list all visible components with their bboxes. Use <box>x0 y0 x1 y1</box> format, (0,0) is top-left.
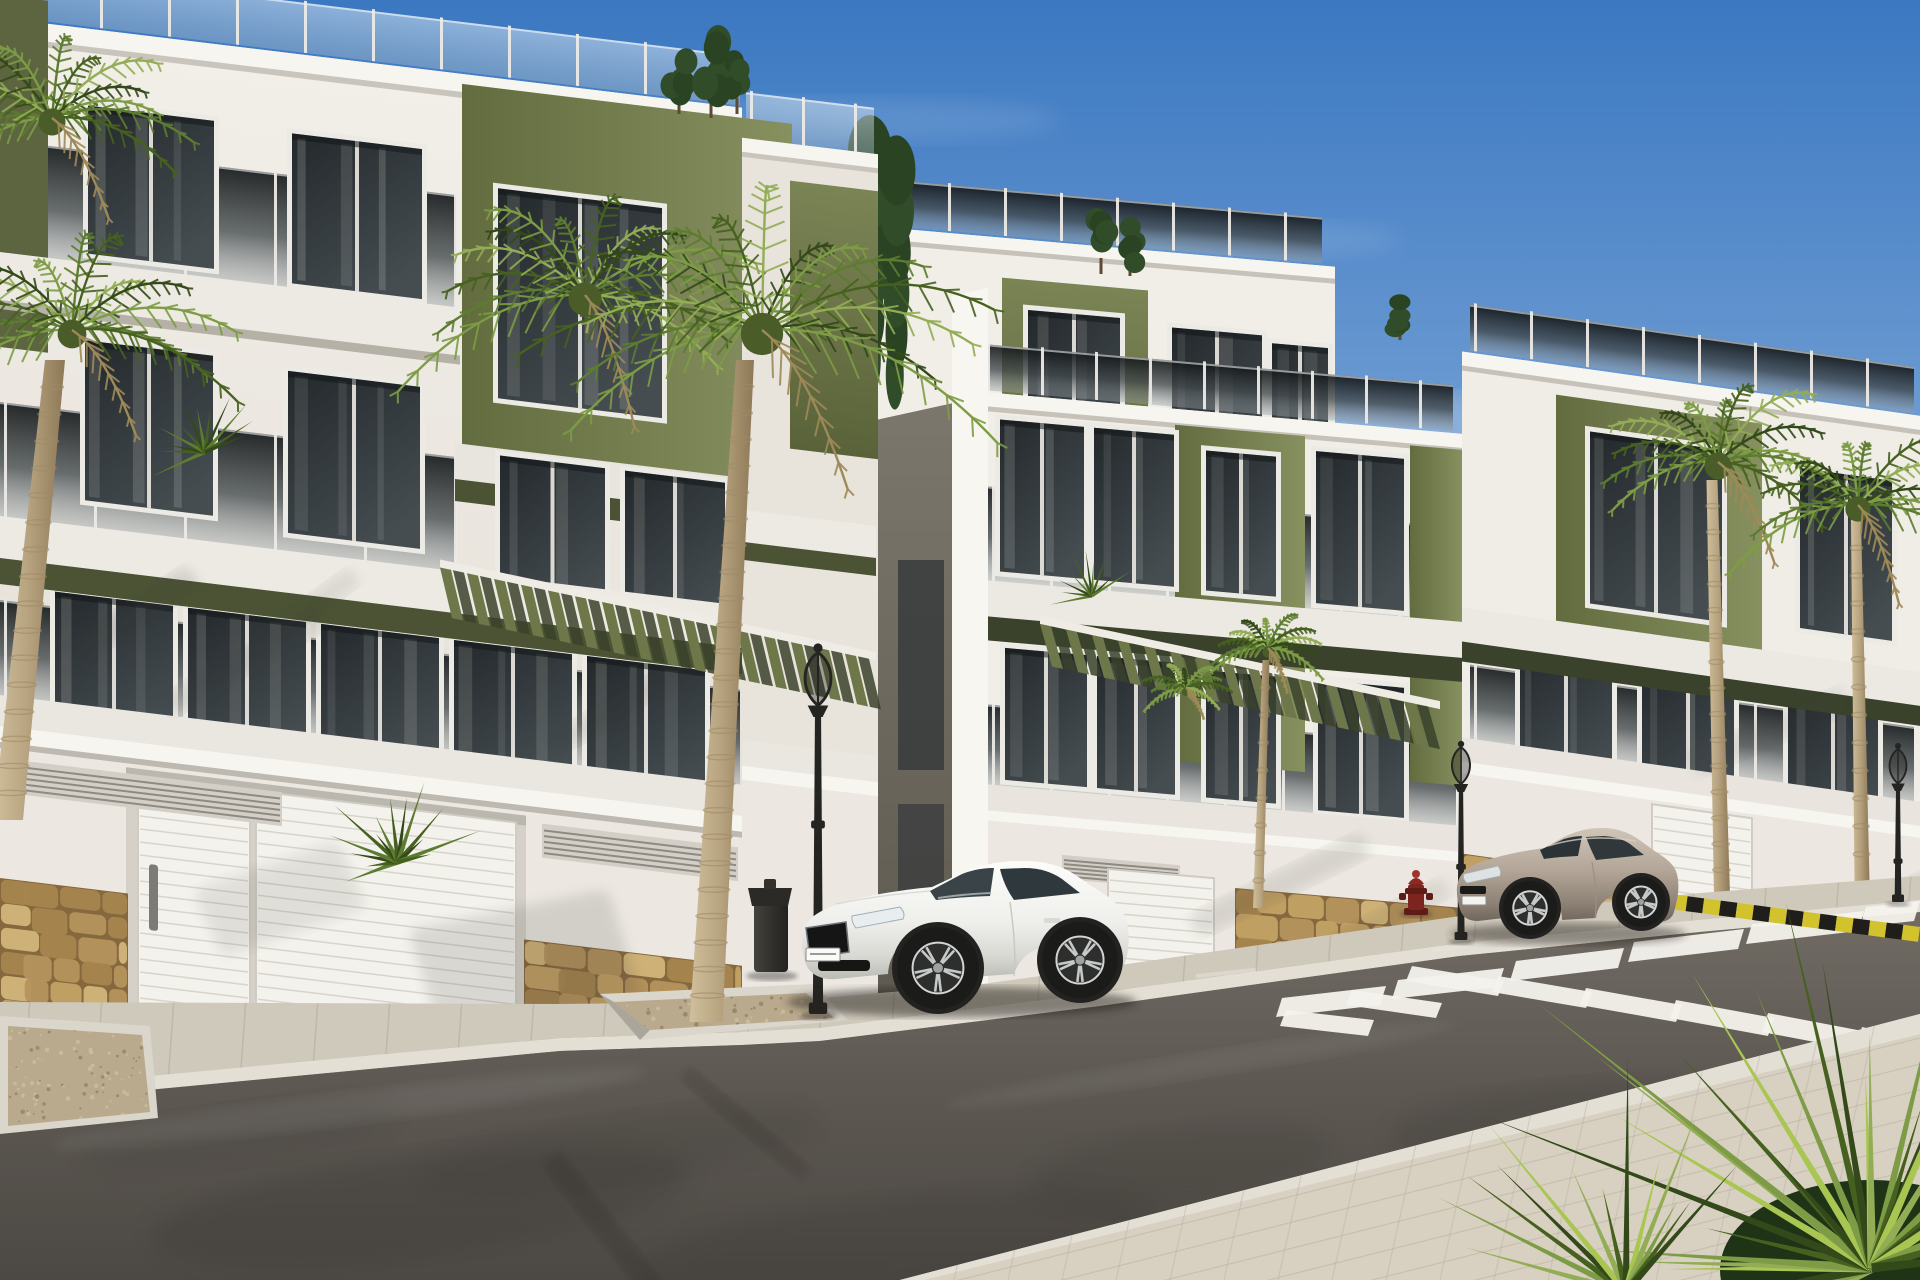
door-handle <box>149 864 158 931</box>
scene-canvas <box>0 0 1920 1280</box>
architectural-render <box>0 0 1920 1280</box>
building-left-block <box>0 0 878 1154</box>
corner-planter <box>0 1016 158 1134</box>
license-plate <box>1462 896 1486 905</box>
